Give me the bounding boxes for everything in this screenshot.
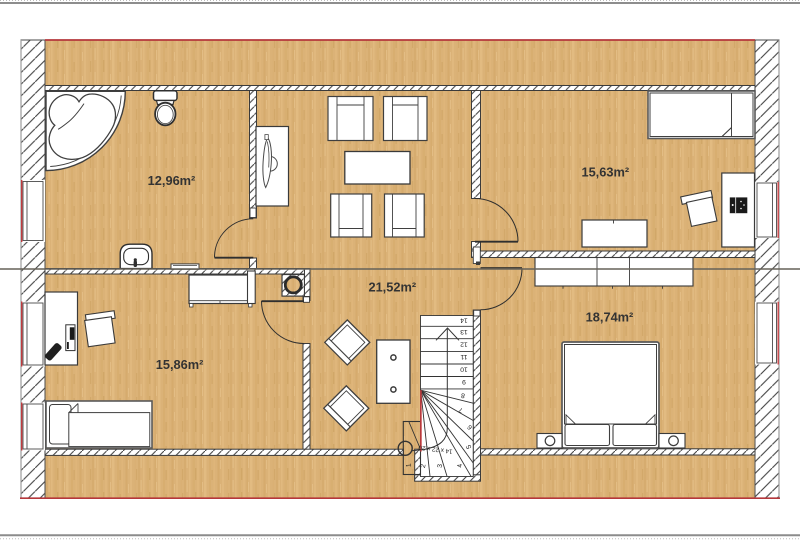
svg-text:9: 9 — [462, 378, 466, 385]
svg-text:15,63m²: 15,63m² — [581, 165, 629, 180]
svg-text:15,86m²: 15,86m² — [156, 357, 204, 372]
svg-text:21,52m²: 21,52m² — [368, 280, 416, 295]
svg-text:13: 13 — [460, 328, 468, 335]
svg-text:10: 10 — [460, 366, 468, 373]
svg-text:14: 14 — [460, 316, 468, 323]
svg-text:12: 12 — [460, 340, 468, 347]
svg-text:18,74m²: 18,74m² — [586, 309, 634, 324]
svg-text:12,96m²: 12,96m² — [148, 173, 196, 188]
svg-text:11: 11 — [460, 353, 467, 360]
